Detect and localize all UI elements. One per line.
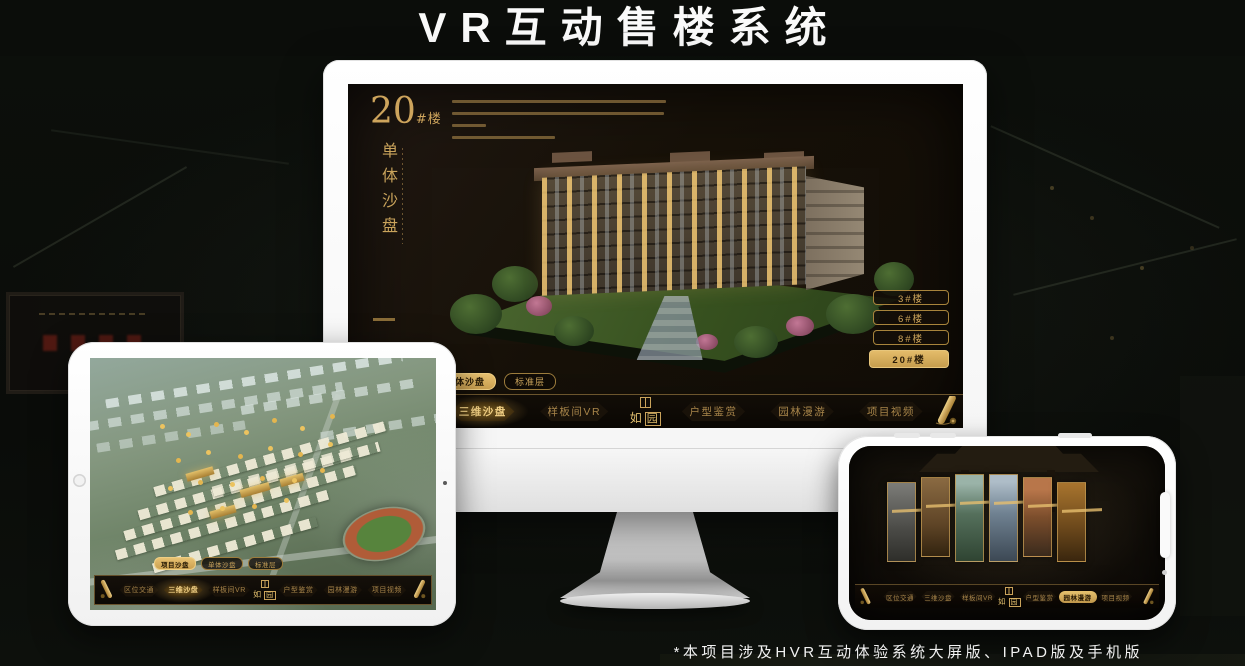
nav-item-3d-sandtable[interactable]: 三维沙盘: [919, 591, 957, 603]
phone-device: 区位交通 三维沙盘 样板间VR 如园 户型鉴赏 园林漫游 项目视频: [838, 436, 1176, 630]
phone-side-notch: [1160, 492, 1170, 558]
tablet-device: 项目沙盘 单体沙盘 标准层 区位交通 三维沙盘 样板间VR 如园 户型鉴赏 园林…: [68, 342, 456, 626]
scene-card[interactable]: [887, 482, 916, 562]
building-number-heading: 20#楼: [370, 94, 442, 130]
tablet-screen: 项目沙盘 单体沙盘 标准层 区位交通 三维沙盘 样板间VR 如园 户型鉴赏 园林…: [90, 358, 436, 610]
tree: [450, 294, 502, 334]
seal-icon: [261, 580, 269, 588]
section-title-vertical: 单体沙盘: [375, 142, 399, 242]
scroll-handle-icon[interactable]: [933, 396, 959, 426]
scroll-handle-icon[interactable]: [411, 579, 427, 601]
nav-item-showroom-vr[interactable]: 样板间VR: [535, 401, 613, 422]
phone-power-button[interactable]: [1058, 433, 1092, 438]
plaque-small-text: [39, 313, 149, 315]
tree: [554, 316, 594, 346]
floor-button-3[interactable]: 3#楼: [873, 290, 949, 305]
map-road-line: [1013, 238, 1237, 296]
aerial-masterplan-view: [90, 358, 436, 610]
building-number-markers[interactable]: [160, 424, 165, 429]
scroll-handle-icon[interactable]: [99, 579, 115, 601]
phone-volume-button[interactable]: [894, 433, 920, 438]
phone-camera-dot: [1162, 570, 1167, 575]
promo-poster: VR互动售楼系统 20#楼 单体沙盘: [0, 0, 1245, 666]
nav-item-garden-roam[interactable]: 园林漫游: [766, 401, 838, 422]
nav-item-garden-roam-active[interactable]: 园林漫游: [1059, 591, 1097, 603]
nav-item-project-video[interactable]: 项目视频: [855, 401, 927, 422]
tablet-view-tab-group: 项目沙盘 单体沙盘 标准层: [154, 557, 283, 570]
building-render: [434, 144, 910, 398]
project-buildings-row: [123, 465, 356, 541]
floor-button-8[interactable]: 8#楼: [873, 330, 949, 345]
project-logo: 如园: [998, 587, 1021, 607]
flower-bush: [786, 316, 814, 336]
nav-item-showroom-vr[interactable]: 样板间VR: [957, 591, 998, 603]
page-title: VR互动售楼系统: [0, 0, 1245, 56]
seal-icon: [1005, 587, 1013, 595]
tab-standard-floor[interactable]: 标准层: [504, 373, 556, 390]
map-poi-dots: [1050, 186, 1054, 190]
scene-card[interactable]: [989, 474, 1018, 562]
building-side-wall: [806, 176, 864, 290]
phone-navbar: 区位交通 三维沙盘 样板间VR 如园 户型鉴赏 园林漫游 项目视频: [855, 584, 1159, 608]
monitor-stand-base: [560, 593, 750, 609]
tab-standard-floor[interactable]: 标准层: [248, 557, 283, 570]
title-underline: [373, 318, 395, 321]
scene-card[interactable]: [921, 477, 950, 557]
nav-item-unit-plans[interactable]: 户型鉴赏: [1021, 591, 1059, 603]
building-facade-windows: [542, 166, 806, 296]
map-road-line: [990, 125, 1219, 229]
flower-bush: [526, 296, 552, 316]
vertical-english-caption: [402, 148, 403, 244]
project-logo: 如园: [253, 580, 276, 600]
nav-item-showroom-vr[interactable]: 样板间VR: [206, 583, 253, 597]
seal-icon: [640, 397, 651, 408]
footer-note: *本项目涉及HVR互动体验系统大屏版、IPAD版及手机版: [674, 641, 1143, 662]
nav-item-unit-plans[interactable]: 户型鉴赏: [276, 583, 320, 597]
tab-single-sandtable[interactable]: 单体沙盘: [201, 557, 243, 570]
scene-card-carousel: [887, 474, 1086, 562]
nav-item-project-video[interactable]: 项目视频: [1097, 591, 1135, 603]
scene-card[interactable]: [955, 474, 984, 562]
map-road-line: [13, 166, 187, 268]
background-photo-strip: [1180, 376, 1245, 616]
map-road-line: [51, 129, 289, 164]
scene-card[interactable]: [1057, 482, 1086, 562]
scroll-handle-icon[interactable]: [859, 587, 873, 607]
nav-item-unit-plans[interactable]: 户型鉴赏: [677, 401, 749, 422]
tab-project-sandtable-active[interactable]: 项目沙盘: [154, 557, 196, 570]
scene-card[interactable]: [1023, 477, 1052, 557]
phone-screen: 区位交通 三维沙盘 样板间VR 如园 户型鉴赏 园林漫游 项目视频: [849, 446, 1165, 620]
floor-button-group: 3#楼 6#楼 8#楼 20#楼: [869, 290, 949, 368]
nav-item-project-video[interactable]: 项目视频: [365, 583, 409, 597]
tablet-camera: [443, 481, 447, 485]
stadium: [337, 499, 431, 570]
scroll-handle-icon[interactable]: [1141, 587, 1155, 607]
phone-volume-button[interactable]: [930, 433, 956, 438]
roof-cap: [552, 151, 592, 163]
tablet-navbar: 区位交通 三维沙盘 样板间VR 如园 户型鉴赏 园林漫游 项目视频: [94, 575, 432, 605]
nav-item-location[interactable]: 区位交通: [881, 591, 919, 603]
nav-item-3d-sandtable-active[interactable]: 三维沙盘: [161, 583, 205, 597]
nav-item-3d-sandtable-active[interactable]: 三维沙盘: [447, 401, 519, 422]
nav-item-garden-roam[interactable]: 园林漫游: [321, 583, 365, 597]
project-logo: 如园: [630, 397, 661, 426]
intro-paragraph-illegible: [452, 100, 666, 148]
floor-button-6[interactable]: 6#楼: [873, 310, 949, 325]
floor-button-20-active[interactable]: 20#楼: [869, 350, 949, 368]
tree: [734, 326, 778, 358]
tablet-home-button[interactable]: [73, 474, 86, 487]
